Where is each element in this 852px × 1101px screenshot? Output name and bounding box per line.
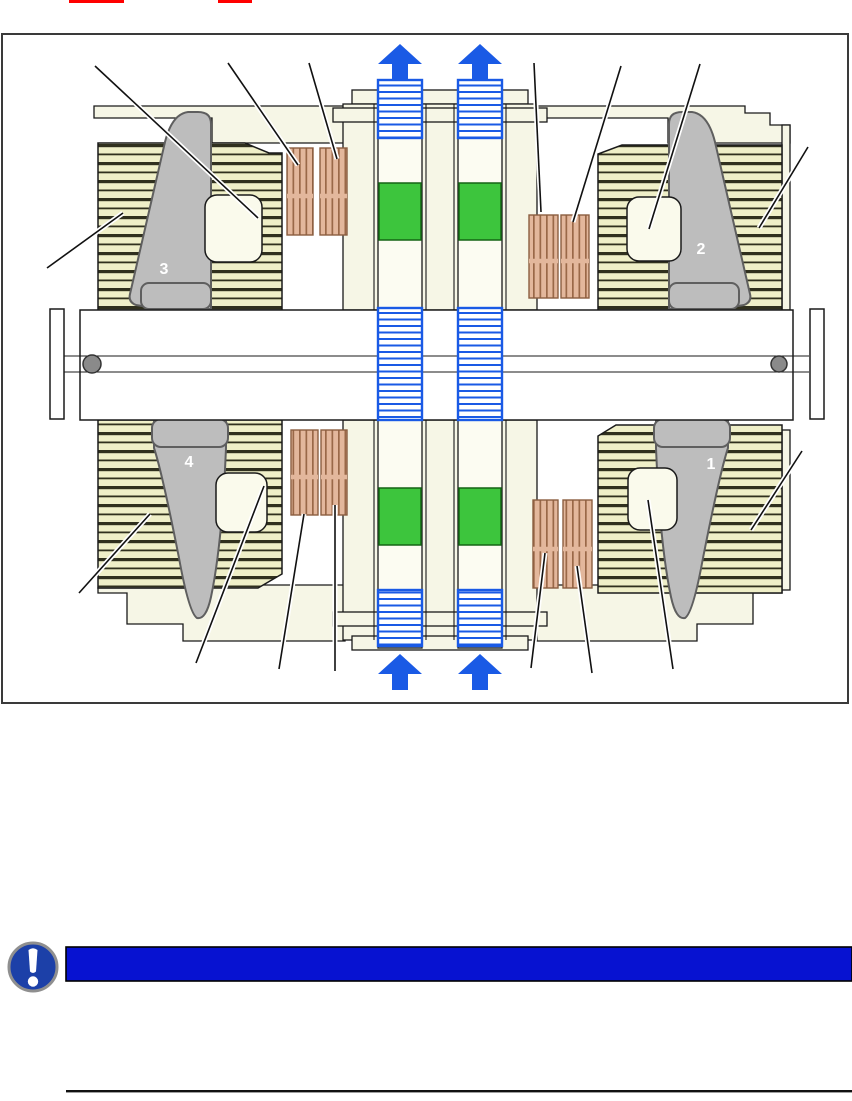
red-mark-left bbox=[69, 0, 124, 3]
coil-stack bbox=[320, 148, 347, 235]
tower-beam-bottom bbox=[333, 612, 547, 626]
fan-block-top-right bbox=[459, 183, 501, 240]
wedge-cap-sector-4 bbox=[152, 419, 228, 447]
notice-row bbox=[9, 943, 852, 991]
cooler-matrix-top-left bbox=[378, 80, 422, 138]
housing-side-strip-bottom-right bbox=[782, 430, 790, 590]
page-canvas: 3 2 4 1 bbox=[0, 0, 852, 1101]
sector-label-4: 4 bbox=[185, 454, 194, 471]
coil-stack bbox=[287, 148, 313, 235]
wedge-cap-sector-1 bbox=[654, 419, 730, 447]
cooler-matrix-top-right bbox=[458, 80, 502, 138]
tower-body-top bbox=[343, 104, 537, 310]
cooler-matrix-bottom-left bbox=[378, 590, 422, 646]
coil-stack bbox=[533, 500, 558, 588]
cooling-tower-top bbox=[333, 80, 547, 310]
fan-block-bottom-right bbox=[459, 488, 501, 545]
red-reference-marks bbox=[69, 0, 252, 3]
shaft-end-plate-right bbox=[810, 309, 824, 419]
fan-block-bottom-left bbox=[379, 488, 421, 545]
wedge-foot-sector-2 bbox=[669, 283, 739, 309]
rotor-shaft bbox=[50, 309, 824, 420]
tower-body-bottom bbox=[343, 420, 537, 640]
cooler-matrix-bottom-right bbox=[458, 590, 502, 646]
rotor-body bbox=[80, 310, 793, 420]
sector-label-2: 2 bbox=[697, 241, 706, 258]
pocket-top-left bbox=[205, 195, 262, 262]
wedge-foot-sector-3 bbox=[141, 283, 211, 309]
coil-stack bbox=[291, 430, 318, 515]
sector-label-3: 3 bbox=[160, 261, 169, 278]
red-mark-right bbox=[218, 0, 252, 3]
fan-block-top-left bbox=[379, 183, 421, 240]
coil-stack bbox=[561, 215, 589, 298]
footer-rule bbox=[66, 1090, 852, 1092]
exclamation-circle-icon bbox=[9, 943, 57, 991]
tower-beam-top bbox=[333, 108, 547, 122]
coil-stack bbox=[321, 430, 347, 515]
shaft-bearing-right bbox=[771, 356, 787, 372]
coil-stack bbox=[529, 215, 558, 298]
shaft-bearing-left bbox=[83, 355, 101, 373]
housing-side-strip-top-right bbox=[782, 125, 790, 310]
cooler-matrix-shaft-right bbox=[458, 308, 502, 420]
notice-title-bar bbox=[66, 947, 852, 981]
shaft-end-plate-left bbox=[50, 309, 64, 419]
sector-label-1: 1 bbox=[707, 456, 716, 473]
cooling-tower-bottom bbox=[333, 420, 547, 650]
cooler-matrix-shaft-left bbox=[378, 308, 422, 420]
